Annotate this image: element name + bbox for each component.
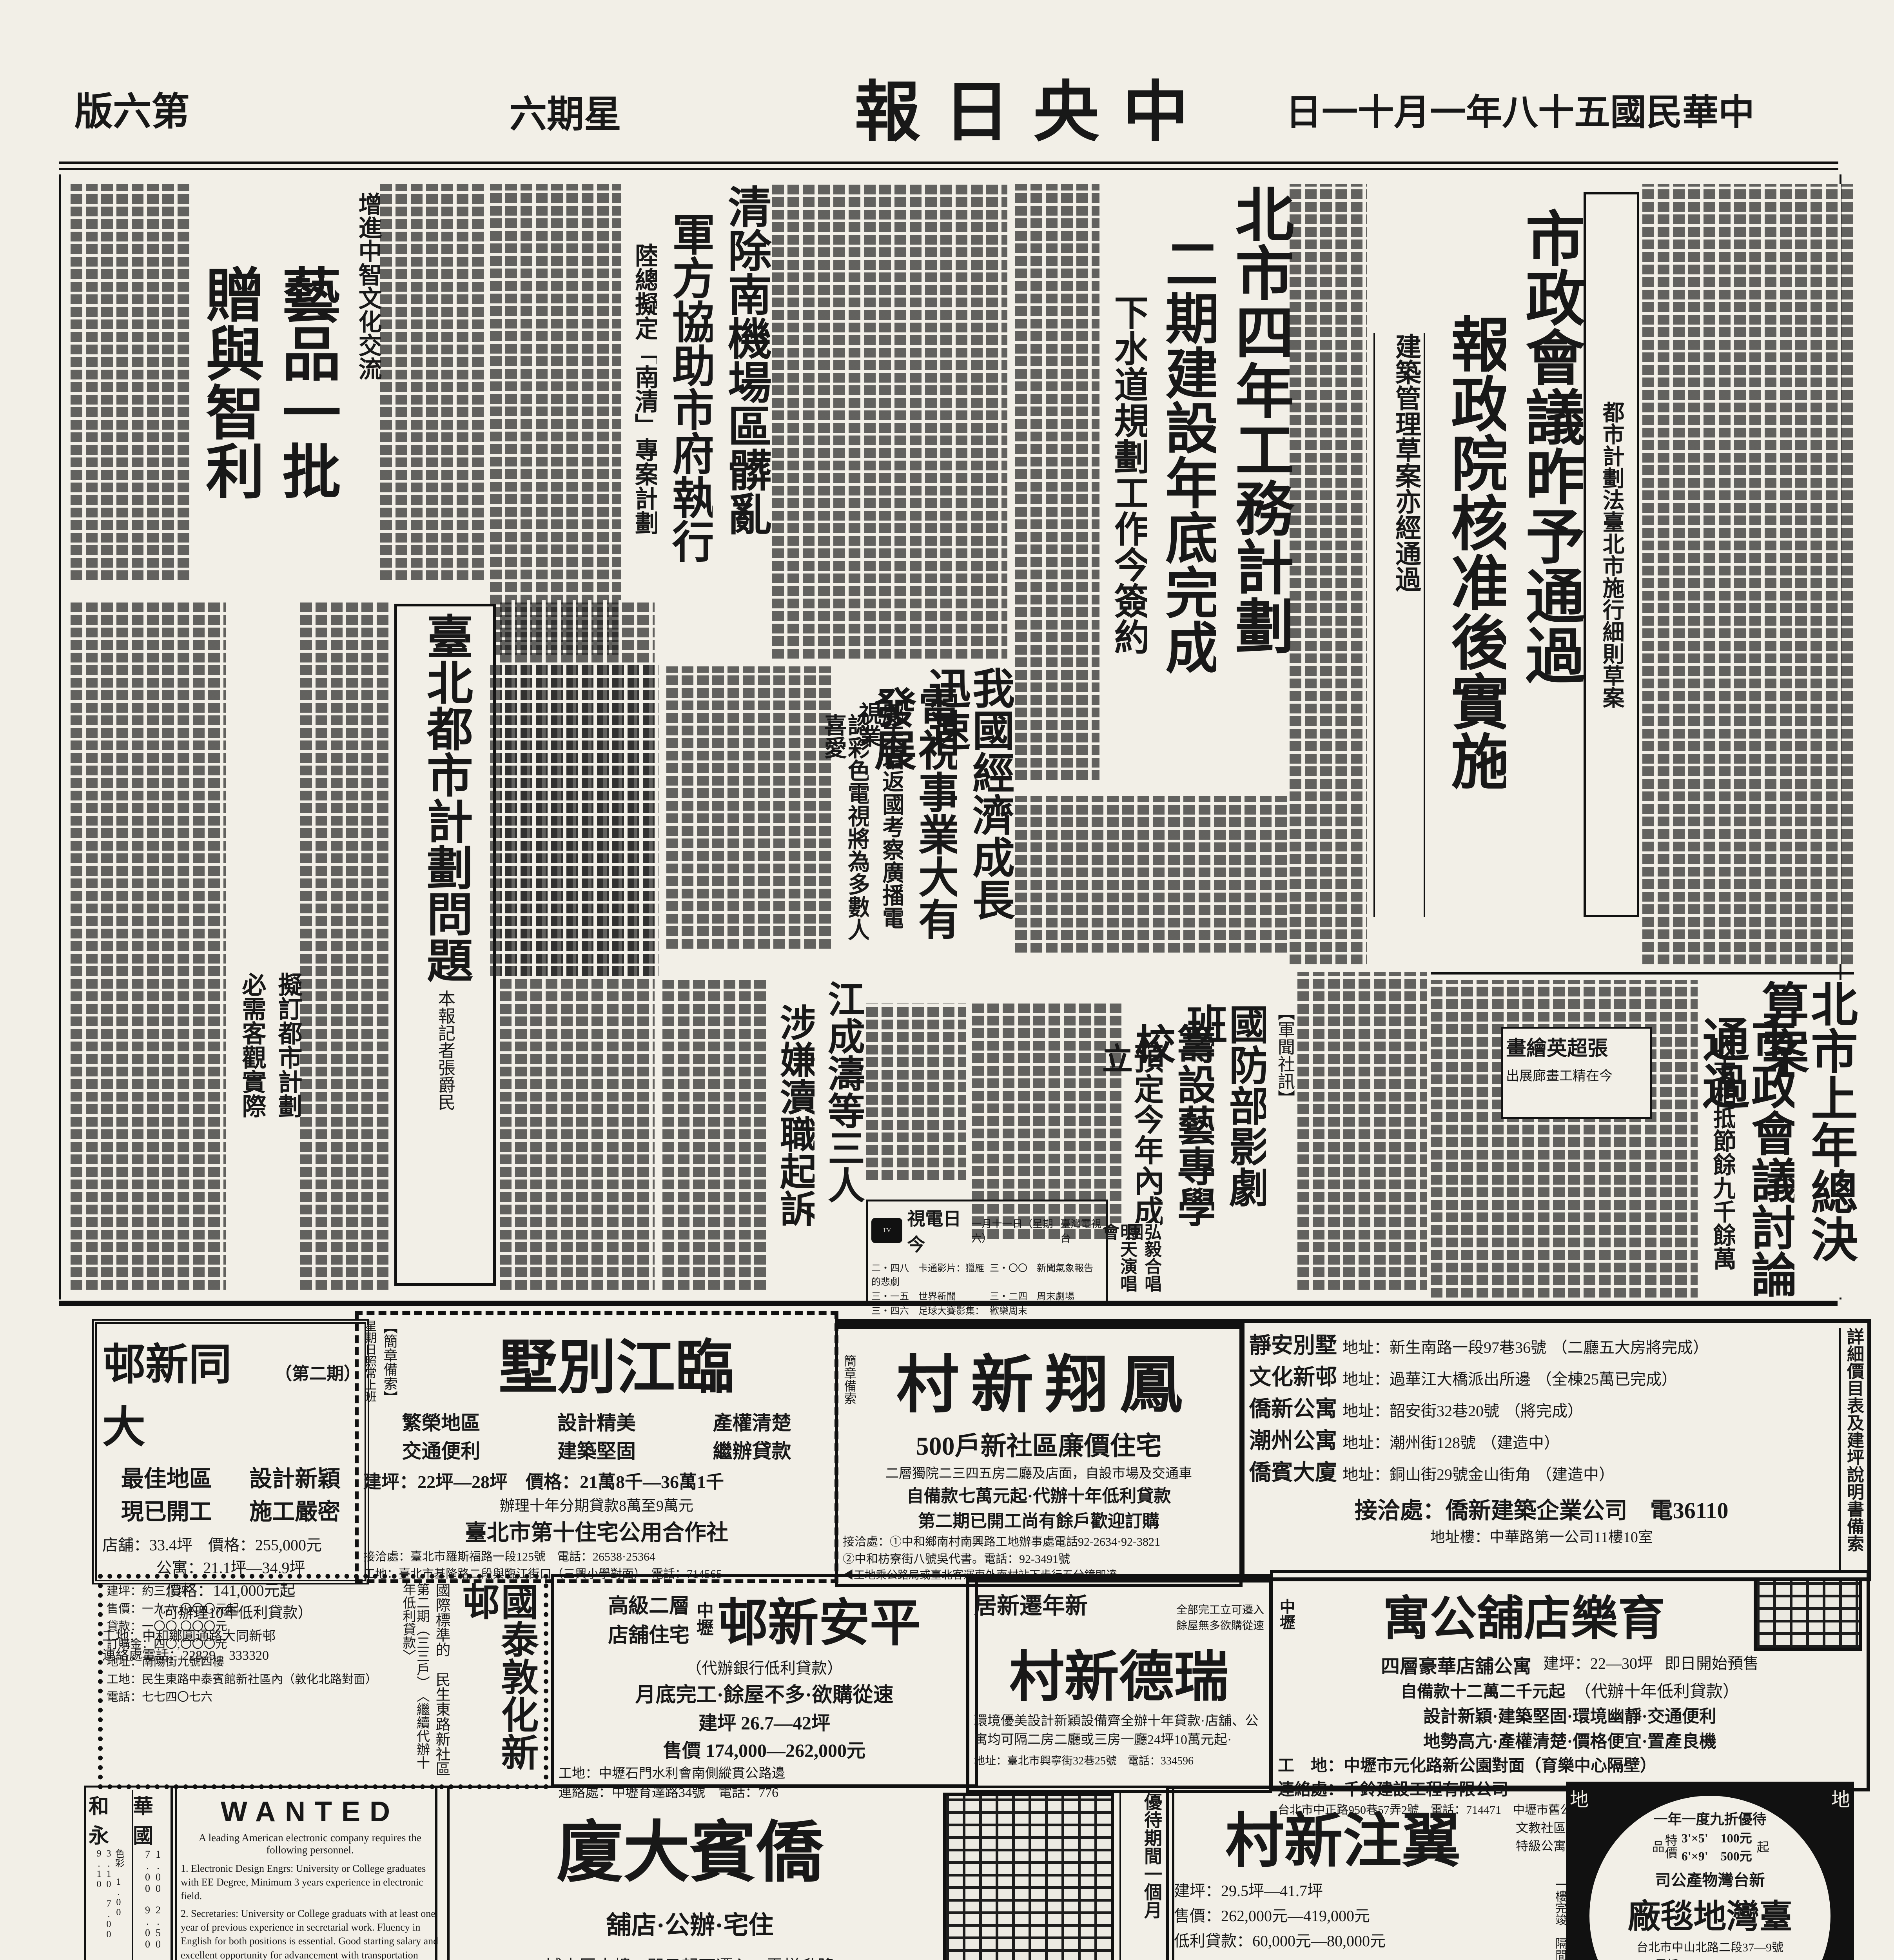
article-lead: 都市計劃法臺北市施行細則草案 市政會議昨予通過 報政院核准後實施 建築管理草案亦…	[1290, 184, 1854, 964]
ad-yule-feature: 設計新穎·建築堅固·環境幽靜·交通便利	[1278, 1702, 1862, 1727]
ad-qiaoxin: 詳細價目表及建坪說明書備索 靜安別墅地址：新生南路一段97巷36號（二廳五大房將…	[1241, 1319, 1871, 1581]
tv-icon: TV	[871, 1218, 902, 1243]
city-plan-byline: 本報記者張爵民	[436, 990, 454, 1111]
ad-qiaoxin-side: 詳細價目表及建坪說明書備索	[1839, 1328, 1863, 1573]
works-headline-3: 下水道規劃工作今簽約	[1099, 184, 1147, 780]
defense-headline: 國防部影劇班	[1214, 1004, 1266, 1239]
ad-datong-name: 邨新同大	[102, 1329, 271, 1455]
ad-fengxiang-line: 二層獨院二三四五房二廳及店面，自設市場及交通車	[843, 1463, 1235, 1482]
paper-title: 報日央中	[854, 59, 1212, 154]
ad-linjiang: 墅別江臨 【簡章備索】 星期日照常上班 繁榮地區設計精美產權清楚 交通便利建築堅…	[355, 1311, 838, 1583]
gallery-sub: 出展廊畫工精在今	[1506, 1065, 1647, 1084]
ad-pingan-loan: （代辦銀行低利貸款）	[559, 1655, 970, 1678]
city-plan-subhead-group: 擬訂都市計劃 必需客觀實際	[226, 600, 300, 1290]
defense-kicker: 【軍聞社訊】	[1266, 1004, 1294, 1239]
page-number: 版六第	[74, 80, 190, 136]
ad-qiaoxin-addr2: 地址樓：中華路第一公司11樓10室	[1249, 1525, 1834, 1546]
lead-kicker: 都市計劃法臺北市施行細則草案	[1584, 192, 1639, 917]
cinema-heyong: 和永 色彩 1.00 3.10 7.00 9.10 登陸安其奧 羅勃米契 主演	[89, 1790, 129, 1960]
ad-ruide-kicker2: 全部完工立可遷入餘屋無多欲購從速	[1176, 1601, 1264, 1633]
chorus-headline: 弘毅合唱團	[1136, 1223, 1160, 1298]
article-economy: 我國經濟成長迅速 電視事業大有發展 鄺天培返國考察廣播電視業 認彩色電視將為多數…	[666, 666, 1011, 949]
cleanup-headline-2: 軍方協助市府執行	[657, 184, 713, 655]
ad-fengxiang-line: 自備款七萬元起·代辦十年低利貸款	[843, 1482, 1235, 1507]
article-text	[662, 980, 767, 1290]
article-text	[1015, 796, 1290, 953]
indicted-headline-2: 涉嫌瀆職起訴	[767, 980, 815, 1290]
ad-qiaoxin-row: 靜安別墅地址：新生南路一段97巷36號（二廳五大房將完成）	[1249, 1328, 1834, 1359]
tv-program: 二・四八 卡通影片：獵雁的悲劇	[871, 1260, 984, 1288]
wanted-item: 1. Electronic Design Engrs: University o…	[181, 1862, 439, 1903]
ad-qiaobin: 優待期間一個月 廈大賓僑 舖店·公辦·宅住 城中區大樓即日起可遷入電梯升降 銅山…	[435, 1786, 1174, 1960]
ad-yule-type: 四層豪華店舖公寓	[1381, 1651, 1531, 1678]
budget-headline: 北市上年總決算案	[1794, 980, 1854, 1298]
tv-date: 一月十一日（星期六）	[972, 1216, 1056, 1245]
economy-headline: 我國經濟成長迅速	[957, 666, 1011, 949]
ad-datong-slogan: 最佳地區	[121, 1460, 212, 1493]
wanted-intro: A leading American electronic company re…	[181, 1832, 439, 1856]
carpet-name: 廠毯地灣臺	[1627, 1890, 1792, 1938]
tv-program: 三・二四 周末劇場	[990, 1289, 1103, 1302]
article-indicted: 江成濤等三人 涉嫌瀆職起訴	[662, 980, 862, 1290]
cinema-huaguo: 華國 1.00 2.50 4.40 7.00 9.00 麒麟寨	[132, 1790, 173, 1960]
carpet-addr: 台北市中山北路二段37—9號	[1636, 1938, 1783, 1955]
ad-qiaoxin-contact: 接洽處：僑新建築企業公司 電36110	[1249, 1492, 1834, 1525]
building-illustration-icon	[1754, 1578, 1862, 1651]
art-gift-headline: 藝品一批	[268, 184, 344, 580]
ad-qiaobin-uses: 舖店·公辦·宅住	[606, 1905, 774, 1941]
ad-pingan-name: 邨新安平	[717, 1582, 921, 1655]
ad-yule-presale: 即日開始預售	[1665, 1651, 1759, 1678]
article-text	[1015, 184, 1099, 780]
ad-linjiang-slogan: 建築堅固	[557, 1436, 636, 1464]
ad-qiaoxin-list: 靜安別墅地址：新生南路一段97巷36號（二廳五大房將完成） 文化新邨地址：過華江…	[1249, 1328, 1834, 1573]
ad-pingan-type: 高級二層店舖住宅	[608, 1589, 689, 1648]
ad-qiaoxin-row: 僑賓大廈地址：銅山街29號金山街角（建造中）	[1249, 1455, 1834, 1486]
ad-datong-shop: 店舖：33.4坪 價格：255,000元	[102, 1532, 359, 1555]
ad-wanted: WANTED A leading American electronic com…	[171, 1786, 450, 1960]
ad-linjiang-spec: 建坪：22坪—28坪 價格：21萬8千—36萬1千	[363, 1468, 830, 1494]
carpet-promo: 一年一度九折優待	[1653, 1808, 1766, 1828]
lead-subhead: 建築管理草案亦經通過	[1373, 333, 1425, 917]
ad-datong-slogan: 施工嚴密	[249, 1493, 340, 1526]
article-text	[490, 184, 621, 655]
article-text	[1290, 184, 1367, 964]
tv-station: 臺灣電視台	[1061, 1216, 1103, 1245]
ad-qiaoxin-row: 僑新公寓地址：韶安街32巷20號（將完成）	[1249, 1391, 1834, 1423]
ad-linjiang-agency: 臺北市第十住宅公用合作社	[363, 1515, 830, 1547]
ad-pingan-spec: 建坪 26.7—42坪	[559, 1708, 970, 1735]
ad-yizhu: 文教社區特級公寓 村新注翼 一樓完竣 隔間包括在內 建坪：29.5坪—41.7坪…	[1166, 1786, 1574, 1960]
ad-cathay-estate: 國泰敦化新邨 國際標準的 民生東路新社區 第二期（三三戶） 〈繼續代辦十年低利貸…	[98, 1574, 548, 1789]
wanted-title: WANTED	[181, 1796, 439, 1828]
ad-datong-slogan: 現已開工	[121, 1493, 212, 1526]
ad-pingan: 邨新安平 中壢 高級二層店舖住宅 （代辦銀行低利貸款） 月底完工·餘屋不多·欲購…	[551, 1574, 978, 1788]
ad-datong-phase: （第二期）	[275, 1359, 359, 1385]
ad-fengxiang-line: 第二期已開工尚有餘戶歡迎訂購	[843, 1507, 1235, 1532]
ad-yule-down: 自備款十二萬二千元起	[1401, 1678, 1565, 1702]
gallery-headline: 畫繪英超張	[1506, 1032, 1647, 1061]
ad-fengxiang-contact: 接洽處：①中和鄉南村南興路工地辦事處電話92-2634·92-3821	[843, 1532, 1235, 1549]
wanted-item: 2. Secretaries: University or College gr…	[181, 1907, 439, 1960]
ad-fengxiang: 村新翔鳳 簡章備索 500戶新社區廉價住宅 二層獨院二三四五房二廳及店面，自設市…	[835, 1319, 1243, 1587]
ad-ruide: 居新遷年新 全部完工立可遷入餘屋無多欲購從速 村新德瑞 環境優美設計新穎設備齊全…	[966, 1574, 1272, 1793]
carpet-tel: 電話：541851·541876	[1655, 1955, 1765, 1960]
article-text	[866, 1004, 966, 1180]
city-plan-banner: 臺北都市計劃問題 本報記者張爵民	[394, 604, 496, 1286]
ad-linjiang-slogan: 繼辦貸款	[713, 1436, 791, 1464]
ad-qiaoxin-row: 潮州公寓地址：潮州街128號（建造中）	[1249, 1423, 1834, 1455]
ad-yule-name: 寓公舖店樂育	[1301, 1580, 1747, 1648]
ad-yizhu-tags: 文教社區特級公寓	[1516, 1818, 1566, 1854]
item-chorus: 弘毅合唱團 明天演唱會	[1109, 1223, 1160, 1298]
ad-pingan-spec: 售價 174,000—262,000元	[559, 1735, 970, 1762]
ad-yule-spec: 建坪：22—30坪	[1543, 1651, 1653, 1678]
lead-headline: 市政會議昨予通過	[1506, 184, 1580, 964]
tv-listing: TV 視電日今 一月十一日（星期六） 臺灣電視台 二・四八 卡通影片：獵雁的悲劇…	[866, 1200, 1108, 1304]
ad-datong-slogan: 設計新穎	[249, 1460, 340, 1493]
article-text	[1297, 972, 1427, 1290]
article-text	[300, 600, 390, 1290]
ad-fengxiang-contact: ②中和枋寮街八號吳代書。電話：92-3491號	[843, 1549, 1235, 1566]
ad-linjiang-note: 【簡章備索】	[382, 1320, 396, 1405]
ad-fengxiang-head: 500戶新社區廉價住宅	[843, 1425, 1235, 1463]
ad-cathay-specs: 建坪：約三八坪 售價：一九八,〇〇〇元起 貸款：一〇〇,〇〇〇元 訂購金：四〇,…	[107, 1583, 396, 1780]
carpet-company: 司公產物灣台新	[1655, 1867, 1765, 1890]
issue-date: 日一十月一年八十五國民華中	[1286, 83, 1754, 135]
ad-linjiang-slogan: 產權清楚	[713, 1407, 791, 1436]
ad-ruide-body: 環境優美設計新穎設備齊全辦十年貸款·店舖、公寓均可隔二房二廳或三房一廳24坪10…	[974, 1712, 1264, 1749]
ad-qiaobin-kickers: 城中區大樓即日起可遷入電梯升降	[545, 1952, 835, 1960]
ad-yizhu-name: 村新注翼	[1174, 1793, 1512, 1878]
carpet-oval: 一年一度九折優待 特價品 3'×5' 100元6'×9' 500元 起 司公產物…	[1589, 1796, 1831, 1960]
tv-header: 視電日今	[907, 1205, 967, 1256]
ad-fengxiang-note: 簡章備索	[843, 1354, 856, 1405]
ad-ruide-name: 村新德瑞	[974, 1633, 1264, 1712]
cleanup-headline: 清除南機場區髒亂	[713, 184, 768, 655]
ad-cinema-strip: 華國 1.00 2.50 4.40 7.00 9.00 麒麟寨 和永 色彩 1.…	[84, 1786, 177, 1960]
ad-cathay-kicker: 國際標準的 民生東路新社區	[433, 1583, 449, 1780]
ad-datong: 邨新同大 （第二期） 最佳地區設計新穎 現已開工施工嚴密 店舖：33.4坪 價格…	[92, 1319, 369, 1584]
article-text	[71, 600, 226, 1290]
ad-linjiang-contact: 接洽處：臺北市羅斯福路一段125號 電話：26538·25364	[363, 1547, 830, 1564]
ad-qiaobin-name: 廈大賓僑	[557, 1798, 823, 1895]
ad-pingan-site: 工地：中壢石門水利會南側縱貫公路邊	[559, 1762, 970, 1782]
ad-yule-area: 中壢	[1278, 1599, 1294, 1630]
ad-ruide-contact: 地址：臺北市興寧街32巷25號 電話：334596	[974, 1752, 1264, 1768]
cleanup-subhead: 陸總擬定「南清」專案計劃	[621, 184, 657, 655]
ad-pingan-line: 月底完工·餘屋不多·欲購從速	[559, 1678, 970, 1708]
ad-yule-site: 工 地：中壢市元化路新公園對面（育樂中心隔壁）	[1278, 1752, 1862, 1776]
ad-yizhu-side: 一樓完竣 隔間包括在內	[1554, 1878, 1566, 1960]
article-text	[1642, 184, 1854, 964]
article-budget: 北市上年總決算案 市政會議討論通過 收支相抵節餘九千餘萬	[1431, 972, 1854, 1298]
article-cleanup: 清除南機場區髒亂 軍方協助市府執行 陸總擬定「南清」專案計劃	[490, 184, 768, 655]
article-text	[490, 662, 659, 976]
lead-headline-2: 報政院核准後實施	[1431, 184, 1506, 964]
ad-yule-feature: 地勢高亢·產權清楚·價格便宜·置產良機	[1278, 1727, 1862, 1752]
ad-linjiang-note2: 星期日照常上班	[363, 1320, 376, 1405]
city-plan-subhead-2: 必需客觀實際	[228, 972, 264, 1290]
ad-cathay-name: 國泰敦化新邨	[454, 1583, 540, 1780]
article-text	[380, 184, 486, 580]
ad-yule: 寓公舖店樂育 中壢 四層豪華店舖公寓 建坪：22—30坪 即日開始預售 自備款十…	[1270, 1570, 1870, 1791]
ad-pingan-area: 中壢	[694, 1601, 712, 1636]
ad-qiaobin-promo: 優待期間一個月	[1119, 1793, 1167, 1960]
city-plan-headline: 臺北都市計劃問題	[421, 613, 469, 983]
section-divider	[59, 1301, 1838, 1306]
works-headline-2: 二期建設年底完成	[1147, 184, 1216, 780]
masthead-rule	[59, 162, 1838, 170]
newspaper-page: 版六第 六期星 報日央中 日一十月一年八十五國民華中 都市計劃法臺北市施行細則草…	[0, 0, 1894, 1960]
ad-linjiang-slogan: 交通便利	[402, 1436, 480, 1464]
tv-program: 三・〇〇 新聞氣象報告	[990, 1260, 1103, 1288]
ad-linjiang-slogan: 設計精美	[557, 1407, 636, 1436]
ad-cathay-kicker: 第二期（三三戶） 〈繼續代辦十年低利貸款〉	[401, 1583, 429, 1780]
works-headline: 北市四年工務計劃	[1216, 184, 1290, 780]
article-art-gift: 增進中智文化交流 藝品一批 贈與智利	[71, 184, 486, 580]
ad-linjiang-name: 墅別江臨	[403, 1320, 830, 1405]
article-works: 北市四年工務計劃 二期建設年底完成 下水道規劃工作今簽約	[1015, 184, 1290, 780]
article-text	[71, 184, 191, 580]
ad-yule-loan: （代辦十年低利貸款）	[1575, 1678, 1739, 1702]
ad-linjiang-slogan: 繁榮地區	[402, 1407, 480, 1436]
ad-yizhu-specs: 建坪：29.5坪—41.7坪 售價：262,000元—419,000元 低利貸款…	[1174, 1878, 1547, 1960]
article-text	[666, 666, 834, 949]
ad-qiaoxin-row: 文化新邨地址：過華江大橋派出所邊（全棟25萬已完成）	[1249, 1359, 1834, 1391]
article-text	[772, 184, 1007, 659]
tv-program: 三・一五 世界新聞	[871, 1289, 984, 1302]
ad-linjiang-loan: 辦理十年分期貸款8萬至9萬元	[363, 1494, 830, 1515]
city-plan-subhead: 擬訂都市計劃	[264, 972, 300, 1290]
carpet-corner: 地	[1831, 1784, 1850, 1811]
art-gift-kicker: 增進中智文化交流	[344, 184, 380, 580]
ad-fengxiang-name: 村新翔鳳	[856, 1334, 1235, 1425]
carpet-up: 起	[1757, 1837, 1769, 1855]
ad-ruide-kicker: 居新遷年新	[974, 1587, 1088, 1620]
weekday: 六期星	[510, 84, 621, 138]
art-gift-headline-2: 贈與智利	[191, 184, 268, 580]
carpet-prices: 3'×5' 100元6'×9' 500元	[1682, 1828, 1752, 1864]
indicted-headline: 江成濤等三人	[815, 980, 862, 1290]
carpet-corner: 地	[1570, 1784, 1589, 1811]
ad-carpet: 地 地 毯 毯 一年一度九折優待 特價品 3'×5' 100元6'×9' 500…	[1566, 1782, 1854, 1960]
item-gallery: 畫繪英超張 出展廊畫工精在今	[1501, 1027, 1652, 1119]
building-illustration	[943, 1793, 1114, 1960]
carpet-special: 特價品	[1651, 1828, 1677, 1864]
